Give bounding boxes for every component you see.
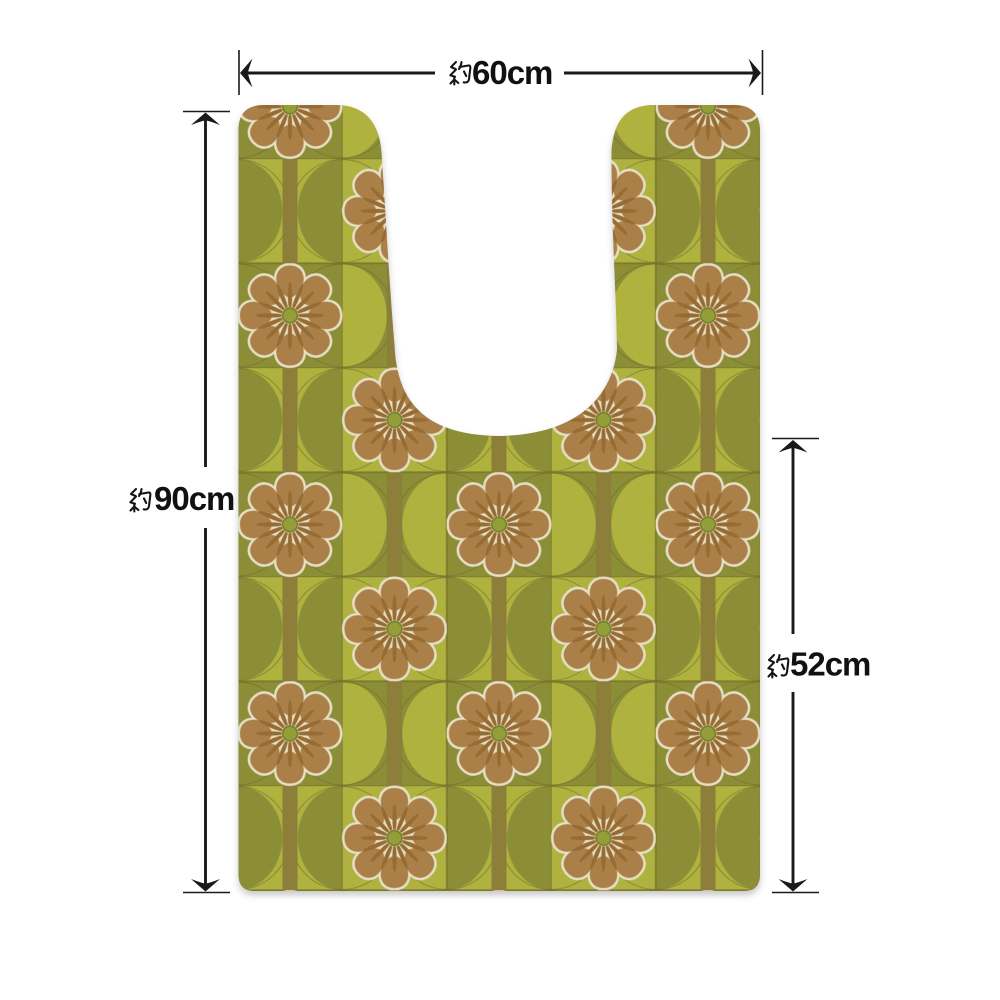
svg-text:90cm: 90cm xyxy=(154,480,234,517)
svg-text:60cm: 60cm xyxy=(472,54,552,91)
svg-text:52cm: 52cm xyxy=(790,646,870,683)
